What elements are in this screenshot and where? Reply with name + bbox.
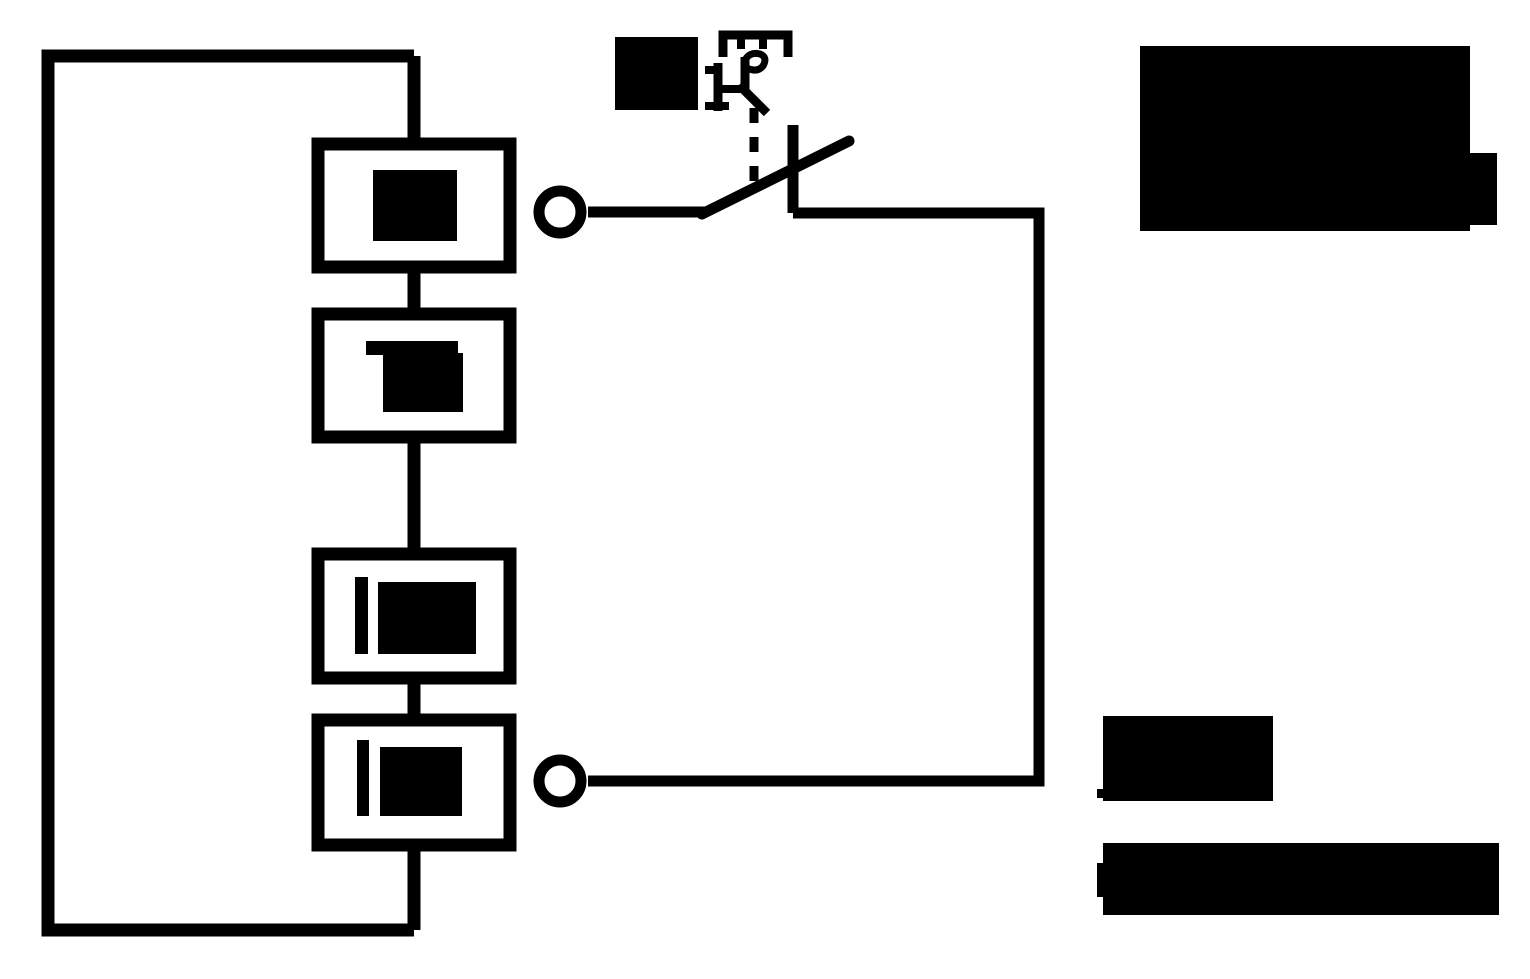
redaction-note-top-right-main bbox=[1140, 46, 1470, 231]
switch-symbol bbox=[702, 108, 849, 214]
circuit-diagram bbox=[0, 0, 1530, 979]
redaction-box4-label-bar bbox=[357, 740, 369, 816]
redaction-note-bottom-line2-tick bbox=[1097, 863, 1104, 897]
redaction-box3-label-main bbox=[378, 582, 476, 654]
actuator-glyph-curl bbox=[744, 53, 765, 70]
redaction-note-bottom-line1-tick bbox=[1097, 789, 1104, 798]
redaction-note-bottom-line2 bbox=[1103, 843, 1499, 915]
switch-blade bbox=[702, 141, 849, 214]
redaction-note-top-right-tab bbox=[1468, 153, 1497, 225]
terminal-top-circle bbox=[539, 191, 581, 233]
redaction-box4-label-main bbox=[380, 747, 462, 816]
actuator-symbol bbox=[705, 35, 788, 113]
redaction-box1-label bbox=[373, 170, 457, 241]
redaction-box2-label-top bbox=[366, 341, 458, 355]
terminal-bottom-circle bbox=[539, 760, 581, 802]
external-route-wire bbox=[588, 213, 1039, 781]
redaction-switch-label bbox=[615, 37, 698, 110]
redaction-box3-label-bar bbox=[355, 577, 368, 654]
terminals bbox=[539, 191, 581, 802]
redaction-note-bottom-line1 bbox=[1103, 716, 1273, 801]
redaction-box2-label-main bbox=[383, 353, 463, 412]
diagram-page bbox=[0, 0, 1530, 979]
